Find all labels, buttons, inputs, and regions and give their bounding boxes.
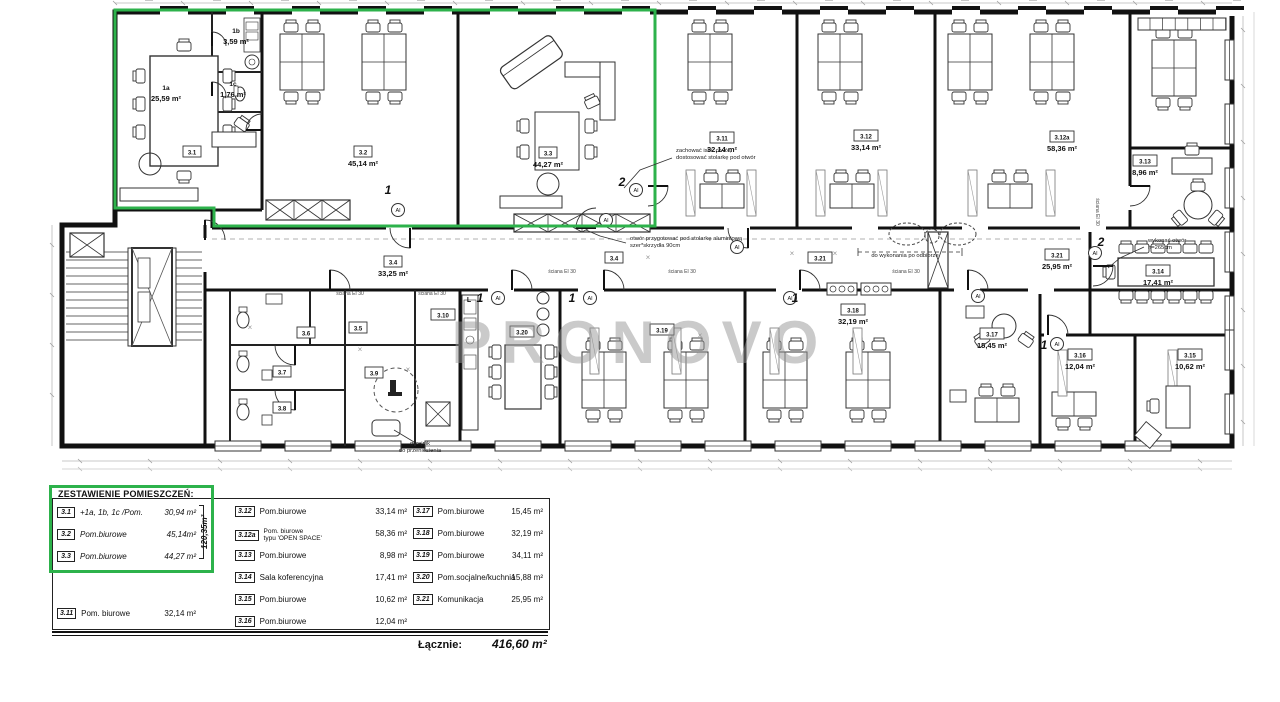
room-id: 3.12a xyxy=(235,530,259,541)
room-name: Pom.biurowe xyxy=(438,529,485,538)
room-id: 3.18 xyxy=(413,528,433,539)
room-name: Pom.biurowe xyxy=(260,507,307,516)
room-area-value: 32,19 m² xyxy=(511,529,543,538)
schedule-row-3.13: 3.13Pom.biurowe8,98 m² xyxy=(235,550,407,564)
floorplan-page: ××××××××AlAlAlAlAlAlAlAlAlAl1a25,59 m²1b… xyxy=(0,0,1280,702)
total-value: 416,60 m² xyxy=(492,637,547,651)
room-id: 3.20 xyxy=(413,572,433,583)
schedule-title: ZESTAWIENIE POMIESZCZEŃ: xyxy=(58,489,194,499)
room-name: Pom.biurowe xyxy=(438,507,485,516)
room-area-value: 15,88 m² xyxy=(511,573,543,582)
room-id: 3.19 xyxy=(413,550,433,561)
room-id: 3.13 xyxy=(235,550,255,561)
room-area-value: 30,94 m² xyxy=(164,508,196,517)
room-name: Pom.biurowe xyxy=(260,617,307,626)
room-id: 3.1 xyxy=(57,507,75,518)
room-id: 3.3 xyxy=(57,551,75,562)
group-total-value: 120,35m² xyxy=(199,503,211,561)
schedule-row-3.19: 3.19Pom.biurowe34,11 m² xyxy=(413,550,543,564)
room-name: Pom.biurowe xyxy=(260,595,307,604)
room-area-value: 33,14 m² xyxy=(375,507,407,516)
total-label: Łącznie: xyxy=(418,639,462,651)
room-id: 3.14 xyxy=(235,572,255,583)
room-id: 3.12 xyxy=(235,506,255,517)
room-area-value: 34,11 m² xyxy=(512,551,543,560)
room-id: 3.15 xyxy=(235,594,255,605)
room-name: +1a, 1b, 1c /Pom. xyxy=(80,508,143,517)
room-name: Pom. biurowe xyxy=(81,609,130,618)
room-area-value: 17,41 m² xyxy=(375,573,407,582)
schedule-row-3.1: 3.1+1a, 1b, 1c /Pom.30,94 m² xyxy=(57,507,196,521)
room-schedule: ZESTAWIENIE POMIESZCZEŃ: 3.1+1a, 1b, 1c … xyxy=(0,0,1280,702)
room-area-value: 58,36 m² xyxy=(375,529,407,538)
room-area-value: 15,45 m² xyxy=(511,507,543,516)
room-id: 3.11 xyxy=(57,608,76,619)
schedule-row-3.17: 3.17Pom.biurowe15,45 m² xyxy=(413,506,543,520)
room-name: Pom.socjalne/kuchnia xyxy=(438,573,516,582)
room-area-value: 45,14m² xyxy=(167,530,196,539)
room-area-value: 8,98 m² xyxy=(380,551,407,560)
schedule-row-3.3: 3.3Pom.biurowe44,27 m² xyxy=(57,551,196,565)
schedule-row-3.20: 3.20Pom.socjalne/kuchnia15,88 m² xyxy=(413,572,543,586)
schedule-bottom-rule xyxy=(52,631,548,636)
room-name: Komunikacja xyxy=(438,595,484,604)
room-area-value: 12,04 m² xyxy=(375,617,407,626)
room-area-value: 44,27 m² xyxy=(164,552,196,561)
room-area-value: 32,14 m² xyxy=(164,609,196,618)
room-name: Pom.biurowe xyxy=(438,551,485,560)
room-area-value: 10,62 m² xyxy=(375,595,407,604)
room-name: Sala koferencyjna xyxy=(260,573,324,582)
schedule-row-3.11: 3.11Pom. biurowe32,14 m² xyxy=(57,608,196,622)
schedule-row-3.14: 3.14Sala koferencyjna17,41 m² xyxy=(235,572,407,586)
schedule-row-3.12a: 3.12aPom. biurowetypu 'OPEN SPACE'58,36 … xyxy=(235,528,407,542)
schedule-row-3.12: 3.12Pom.biurowe33,14 m² xyxy=(235,506,407,520)
schedule-row-3.16: 3.16Pom.biurowe12,04 m² xyxy=(235,616,407,630)
room-name: Pom.biurowe xyxy=(80,530,127,539)
room-id: 3.17 xyxy=(413,506,433,517)
schedule-row-3.18: 3.18Pom.biurowe32,19 m² xyxy=(413,528,543,542)
room-name: Pom. biurowetypu 'OPEN SPACE' xyxy=(264,528,322,542)
room-id: 3.2 xyxy=(57,529,75,540)
schedule-row-3.21: 3.21Komunikacja25,95 m² xyxy=(413,594,543,608)
room-id: 3.16 xyxy=(235,616,255,627)
schedule-row-3.15: 3.15Pom.biurowe10,62 m² xyxy=(235,594,407,608)
room-name: Pom.biurowe xyxy=(260,551,307,560)
room-name: Pom.biurowe xyxy=(80,552,127,561)
schedule-row-3.2: 3.2Pom.biurowe45,14m² xyxy=(57,529,196,543)
room-id: 3.21 xyxy=(413,594,433,605)
room-area-value: 25,95 m² xyxy=(511,595,543,604)
